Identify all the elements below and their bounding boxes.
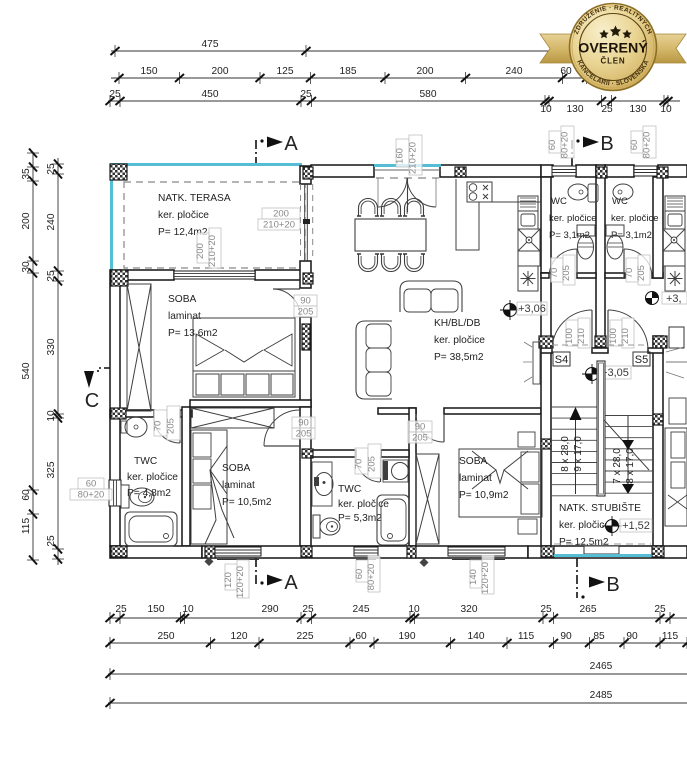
svg-text:10: 10 [540, 104, 552, 115]
svg-text:TWC: TWC [134, 456, 157, 467]
svg-text:laminat: laminat [168, 311, 201, 322]
svg-text:80+20: 80+20 [560, 132, 571, 159]
svg-text:140: 140 [468, 631, 485, 642]
svg-text:SOBA: SOBA [222, 463, 251, 474]
svg-text:60: 60 [21, 489, 32, 501]
svg-text:10: 10 [46, 410, 57, 422]
svg-text:ČLEN: ČLEN [601, 57, 626, 66]
svg-text:25: 25 [300, 89, 312, 100]
svg-text:25: 25 [654, 604, 666, 615]
svg-text:7 x 28,0: 7 x 28,0 [612, 448, 623, 484]
svg-text:C: C [85, 390, 99, 412]
svg-text:90: 90 [300, 296, 311, 307]
svg-text:200: 200 [195, 243, 206, 259]
svg-text:70: 70 [354, 459, 365, 470]
svg-text:35: 35 [21, 168, 32, 180]
svg-text:30: 30 [21, 261, 32, 273]
svg-text:10: 10 [408, 604, 420, 615]
svg-text:100: 100 [608, 328, 619, 344]
svg-text:250: 250 [158, 631, 175, 642]
svg-text:115: 115 [662, 631, 679, 642]
svg-text:25: 25 [540, 604, 552, 615]
svg-text:210: 210 [576, 328, 587, 344]
svg-text:NATK. STUBIŠTE: NATK. STUBIŠTE [559, 501, 641, 514]
svg-text:8 x 17,0: 8 x 17,0 [625, 448, 636, 484]
svg-text:70: 70 [624, 268, 635, 279]
svg-text:ker. pločice: ker. pločice [611, 213, 659, 224]
svg-text:60: 60 [86, 479, 97, 490]
svg-text:120: 120 [231, 631, 248, 642]
svg-text:190: 190 [399, 631, 416, 642]
svg-text:S5: S5 [635, 354, 648, 366]
svg-text:580: 580 [420, 89, 437, 100]
svg-text:330: 330 [46, 338, 57, 355]
svg-text:ker. pločice: ker. pločice [434, 335, 485, 346]
svg-text:125: 125 [277, 66, 294, 77]
svg-text:90: 90 [298, 418, 309, 429]
svg-text:B: B [606, 574, 619, 596]
svg-text:ker. pločice: ker. pločice [127, 472, 178, 483]
svg-text:205: 205 [561, 265, 572, 281]
svg-text:25: 25 [109, 89, 121, 100]
svg-text:S4: S4 [555, 354, 568, 366]
svg-text:OVERENÝ: OVERENÝ [578, 39, 648, 57]
svg-text:210: 210 [620, 328, 631, 344]
svg-text:WC: WC [551, 196, 567, 207]
svg-text:475: 475 [202, 39, 219, 50]
svg-text:+1,52: +1,52 [622, 520, 650, 532]
svg-text:60: 60 [547, 140, 558, 151]
svg-text:185: 185 [340, 66, 357, 77]
svg-text:P= 10,5m2: P= 10,5m2 [222, 497, 272, 508]
svg-text:70: 70 [549, 268, 560, 279]
svg-text:P= 38,5m2: P= 38,5m2 [434, 352, 484, 363]
svg-text:25: 25 [302, 604, 314, 615]
svg-text:120: 120 [223, 572, 234, 588]
svg-text:130: 130 [567, 104, 584, 115]
svg-text:115: 115 [21, 518, 32, 535]
svg-text:A: A [284, 572, 298, 594]
svg-text:9 x 17,0: 9 x 17,0 [573, 436, 584, 472]
svg-text:25: 25 [115, 604, 127, 615]
svg-text:P= 10,9m2: P= 10,9m2 [459, 490, 509, 501]
svg-text:25: 25 [601, 104, 613, 115]
svg-text:ker. pločice: ker. pločice [158, 210, 209, 221]
svg-text:540: 540 [21, 362, 32, 379]
svg-text:325: 325 [46, 461, 57, 478]
svg-text:205: 205 [298, 307, 314, 318]
svg-text:+3,: +3, [666, 293, 682, 305]
svg-text:25: 25 [46, 163, 57, 175]
svg-text:205: 205 [296, 429, 312, 440]
svg-text:240: 240 [46, 213, 57, 230]
svg-text:60: 60 [355, 631, 367, 642]
svg-text:450: 450 [202, 89, 219, 100]
svg-text:60: 60 [629, 140, 640, 151]
svg-text:160: 160 [395, 148, 406, 164]
svg-text:245: 245 [353, 604, 370, 615]
svg-text:2465: 2465 [590, 661, 613, 672]
svg-text:205: 205 [412, 433, 428, 444]
svg-text:85: 85 [593, 631, 605, 642]
svg-text:25: 25 [46, 535, 57, 547]
svg-text:60: 60 [354, 569, 365, 580]
svg-text:ker. pločice: ker. pločice [559, 520, 610, 531]
svg-text:90: 90 [415, 422, 426, 433]
svg-text:80+20: 80+20 [642, 132, 653, 159]
svg-text:320: 320 [461, 604, 478, 615]
svg-text:8 x 28,0: 8 x 28,0 [560, 436, 571, 472]
svg-text:80+20: 80+20 [366, 564, 377, 591]
svg-text:10: 10 [660, 104, 672, 115]
svg-text:100: 100 [564, 328, 575, 344]
svg-text:25: 25 [46, 270, 57, 282]
svg-text:60: 60 [560, 66, 572, 77]
svg-text:B: B [600, 133, 613, 155]
svg-text:10: 10 [182, 604, 194, 615]
svg-text:240: 240 [506, 66, 523, 77]
svg-text:70: 70 [153, 421, 164, 432]
svg-text:200: 200 [417, 66, 434, 77]
svg-text:130: 130 [630, 104, 647, 115]
svg-text:P= 5,3m2: P= 5,3m2 [338, 513, 382, 524]
svg-text:205: 205 [166, 418, 177, 434]
svg-text:+3,06: +3,06 [518, 303, 546, 315]
svg-text:200: 200 [21, 212, 32, 229]
svg-text:TWC: TWC [338, 484, 361, 495]
svg-text:120+20: 120+20 [480, 562, 491, 594]
svg-text:KH/BL/DB: KH/BL/DB [434, 318, 481, 329]
svg-text:A: A [284, 133, 298, 155]
svg-text:210+20: 210+20 [207, 235, 218, 267]
svg-text:80+20: 80+20 [78, 490, 105, 501]
svg-text:200: 200 [212, 66, 229, 77]
svg-text:120+20: 120+20 [235, 566, 246, 598]
svg-text:210+20: 210+20 [263, 220, 295, 231]
svg-text:265: 265 [580, 604, 597, 615]
svg-text:SOBA: SOBA [459, 456, 488, 467]
svg-text:WC: WC [612, 196, 628, 207]
svg-text:SOBA: SOBA [168, 294, 197, 305]
svg-text:2485: 2485 [590, 690, 613, 701]
svg-text:140: 140 [468, 569, 479, 585]
svg-text:150: 150 [148, 604, 165, 615]
svg-text:290: 290 [262, 604, 279, 615]
svg-text:225: 225 [297, 631, 314, 642]
svg-text:205: 205 [367, 456, 378, 472]
svg-text:115: 115 [518, 631, 535, 642]
svg-text:200: 200 [273, 209, 289, 220]
svg-text:laminat: laminat [459, 473, 492, 484]
svg-text:205: 205 [636, 265, 647, 281]
svg-text:NATK. TERASA: NATK. TERASA [158, 193, 231, 204]
svg-text:150: 150 [141, 66, 158, 77]
svg-text:ker. pločice: ker. pločice [549, 213, 597, 224]
svg-text:210+20: 210+20 [408, 142, 419, 174]
svg-text:90: 90 [560, 631, 572, 642]
svg-text:90: 90 [626, 631, 638, 642]
